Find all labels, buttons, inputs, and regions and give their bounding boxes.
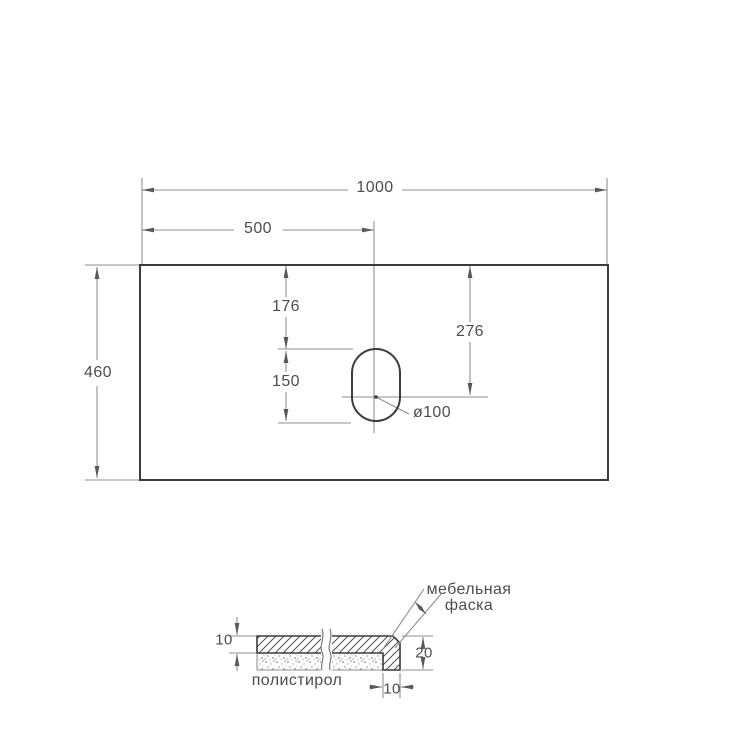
polystyrene-layer xyxy=(257,653,383,670)
dim-depth-label: 460 xyxy=(84,365,112,381)
dim-hole-center-offset-label: 276 xyxy=(456,324,484,340)
top-view xyxy=(85,178,608,480)
dim-edge-width-label: 10 xyxy=(383,682,401,697)
chamfer-label-line2: фаска xyxy=(445,598,493,614)
diameter-leader-line xyxy=(376,397,409,414)
chamfer-ext-line-1 xyxy=(383,589,424,649)
filler-material-label: полистирол xyxy=(252,673,343,689)
dim-hole-center-from-left-label: 500 xyxy=(244,221,272,237)
chamfer-label-line1: мебельная xyxy=(427,582,512,598)
oval-hole xyxy=(352,349,400,421)
dim-top-thickness-label: 10 xyxy=(215,633,233,648)
dim-width-label: 1000 xyxy=(356,180,393,196)
technical-drawing-svg xyxy=(0,0,750,750)
dim-hole-length-label: 150 xyxy=(272,374,300,390)
countertop-dimension-drawing: 1000 500 460 176 150 276 ø100 10 20 10 м… xyxy=(0,0,750,750)
hole-center-point xyxy=(374,395,378,399)
dim-hole-diameter-label: ø100 xyxy=(413,405,451,421)
dim-edge-height-label: 20 xyxy=(415,646,433,661)
dim-hole-top-offset-label: 176 xyxy=(272,299,300,315)
chamfer-dim-arrow xyxy=(415,602,426,614)
